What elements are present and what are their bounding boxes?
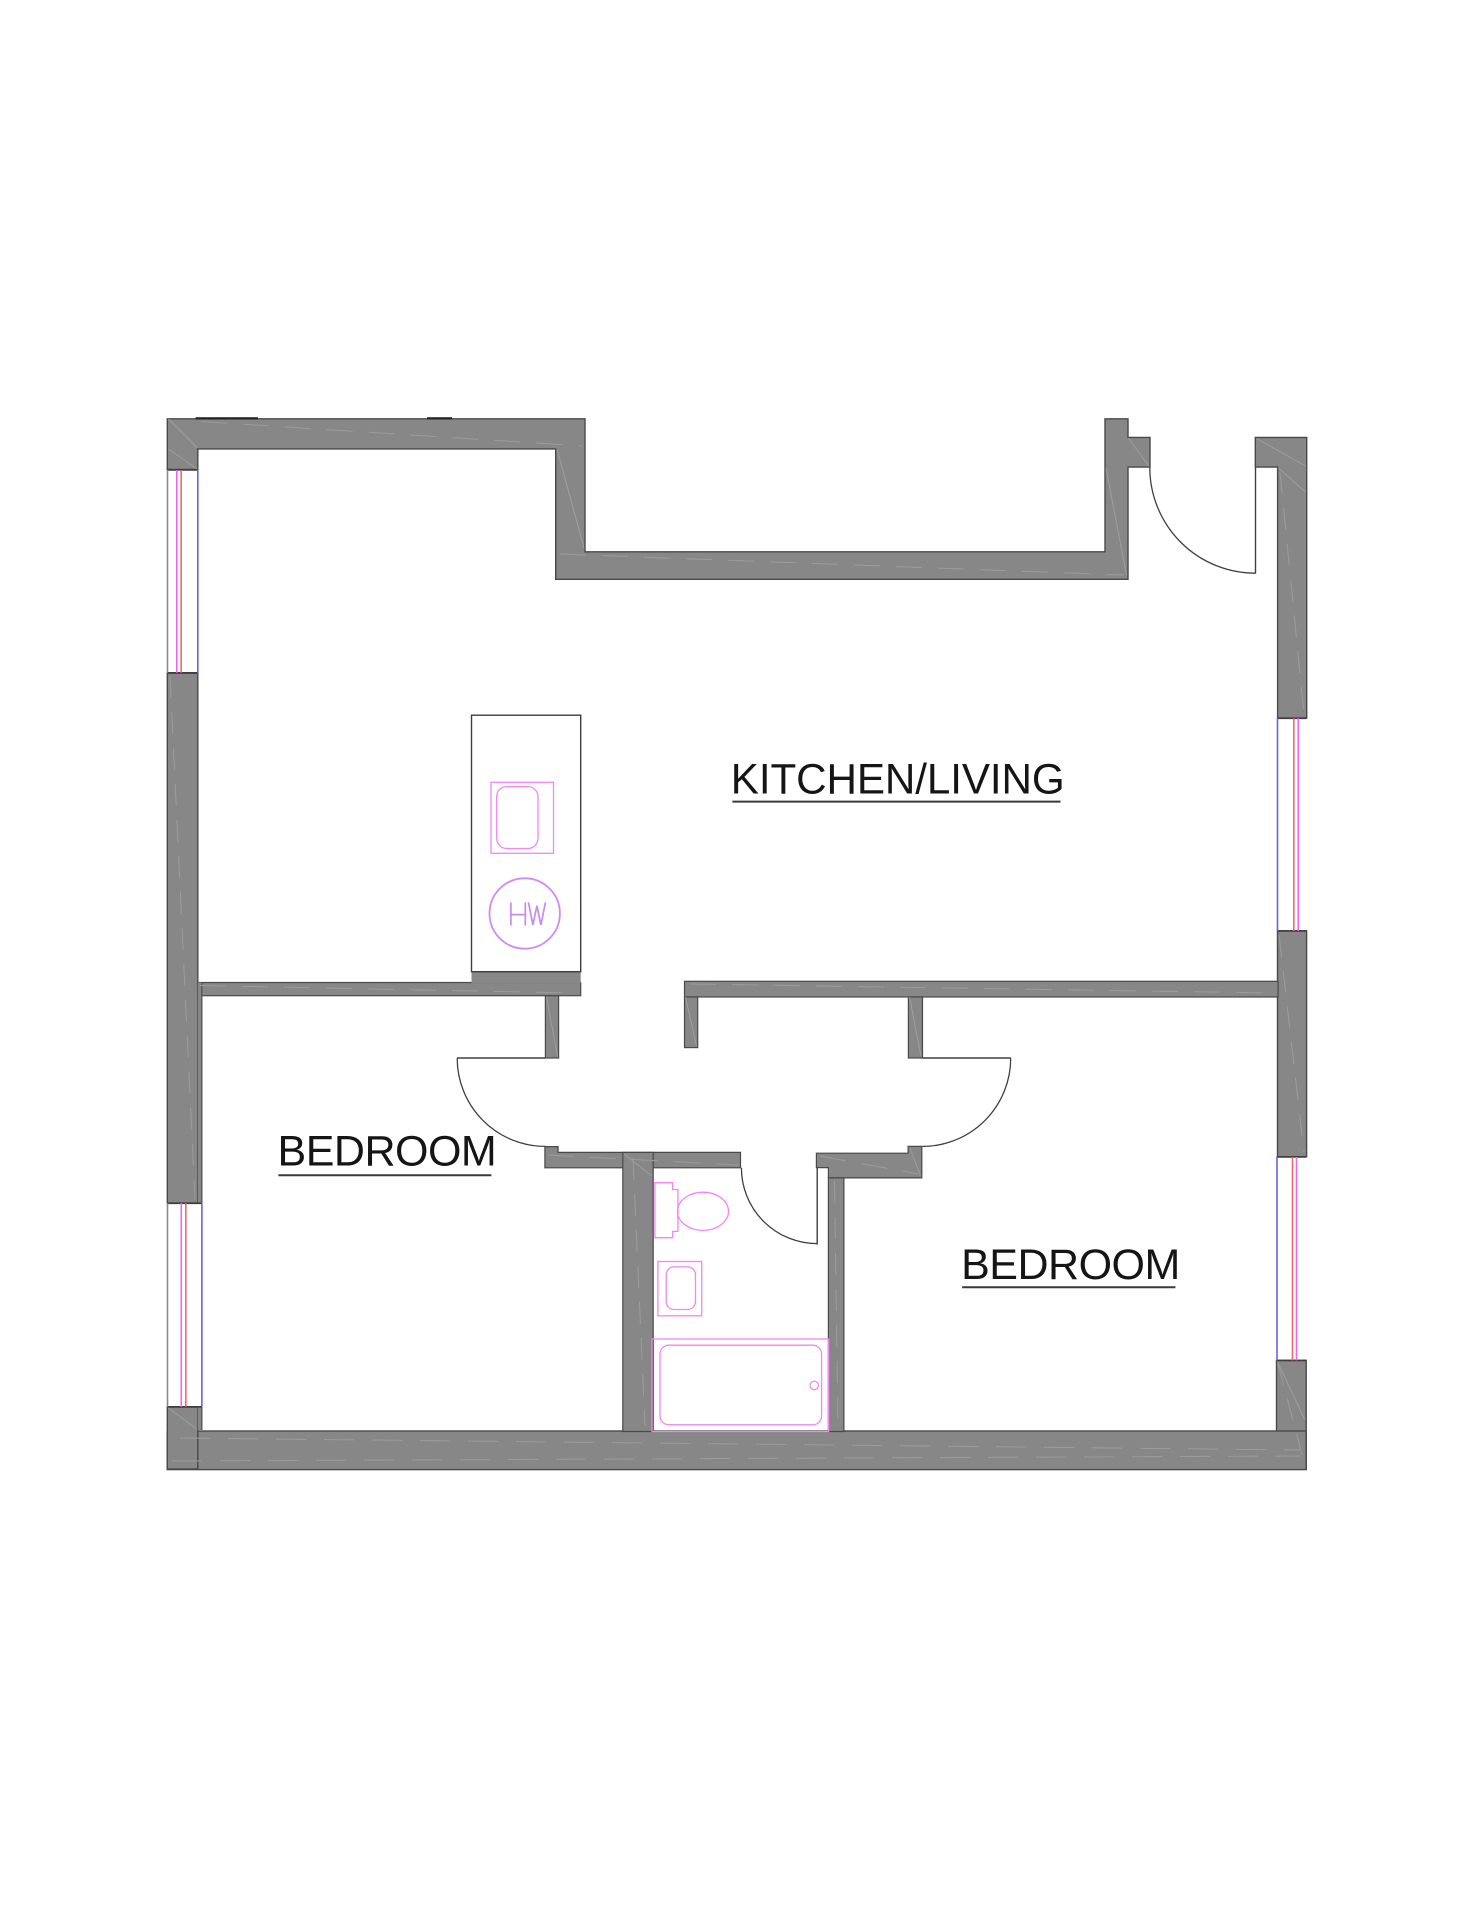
svg-text:BEDROOM: BEDROOM <box>961 1241 1180 1289</box>
svg-text:KITCHEN/LIVING: KITCHEN/LIVING <box>731 755 1065 802</box>
svg-text:BEDROOM: BEDROOM <box>278 1127 497 1175</box>
